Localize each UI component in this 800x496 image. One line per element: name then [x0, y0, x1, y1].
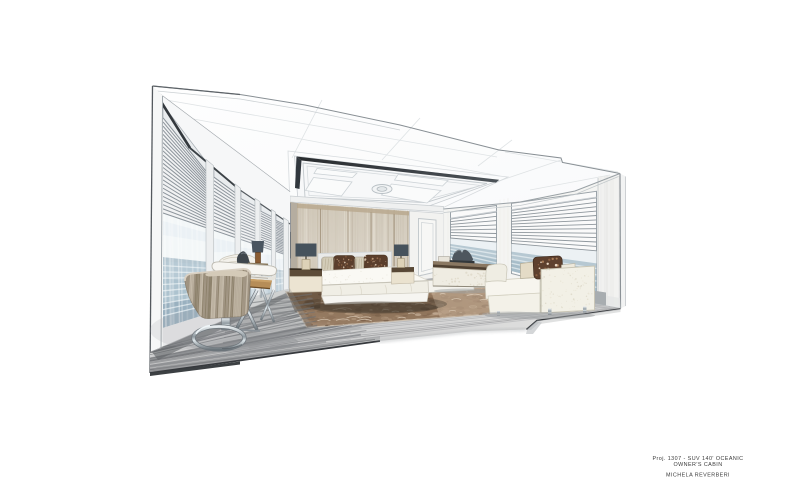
svg-text:OWNER'S CABIN: OWNER'S CABIN: [673, 462, 722, 468]
svg-text:MICHELA REVERBERI: MICHELA REVERBERI: [666, 473, 730, 479]
